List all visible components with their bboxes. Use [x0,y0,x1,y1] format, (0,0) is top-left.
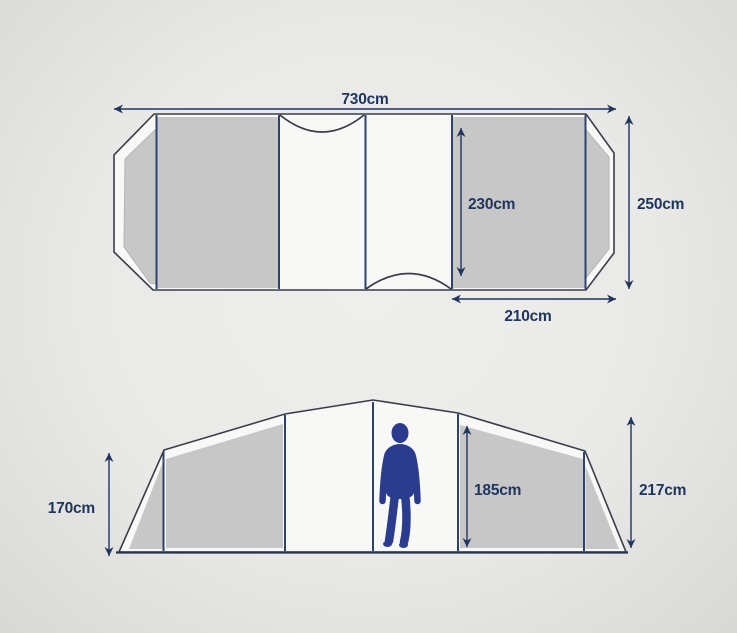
dimension-side-wall-height: 170cm [48,453,109,556]
dimension-side-wall-height-label: 170cm [48,500,95,517]
elevation-left-bedroom-panel [166,424,283,548]
dimension-peak-height-label: 217cm [639,482,686,499]
side-elevation-view: 170cm 185cm 217cm [48,400,687,556]
dimension-peak-height: 217cm [631,417,686,548]
floorplan-left-bedroom-panel [157,117,278,288]
dimension-bedroom-length: 210cm [452,299,616,325]
dimension-total-length-label: 730cm [341,91,388,108]
dimension-total-width: 250cm [629,116,684,289]
tent-dimensions-diagram: 730cm 250cm 230cm 210cm [0,0,737,633]
dimension-inner-width-label: 230cm [468,196,515,213]
floor-plan-view: 730cm 250cm 230cm 210cm [114,91,684,325]
dimension-total-length: 730cm [114,91,616,109]
dimension-total-width-label: 250cm [637,196,684,213]
diagram-canvas: 730cm 250cm 230cm 210cm [0,0,737,633]
dimension-bedroom-length-label: 210cm [504,308,551,325]
dimension-inner-height-label: 185cm [474,482,521,499]
